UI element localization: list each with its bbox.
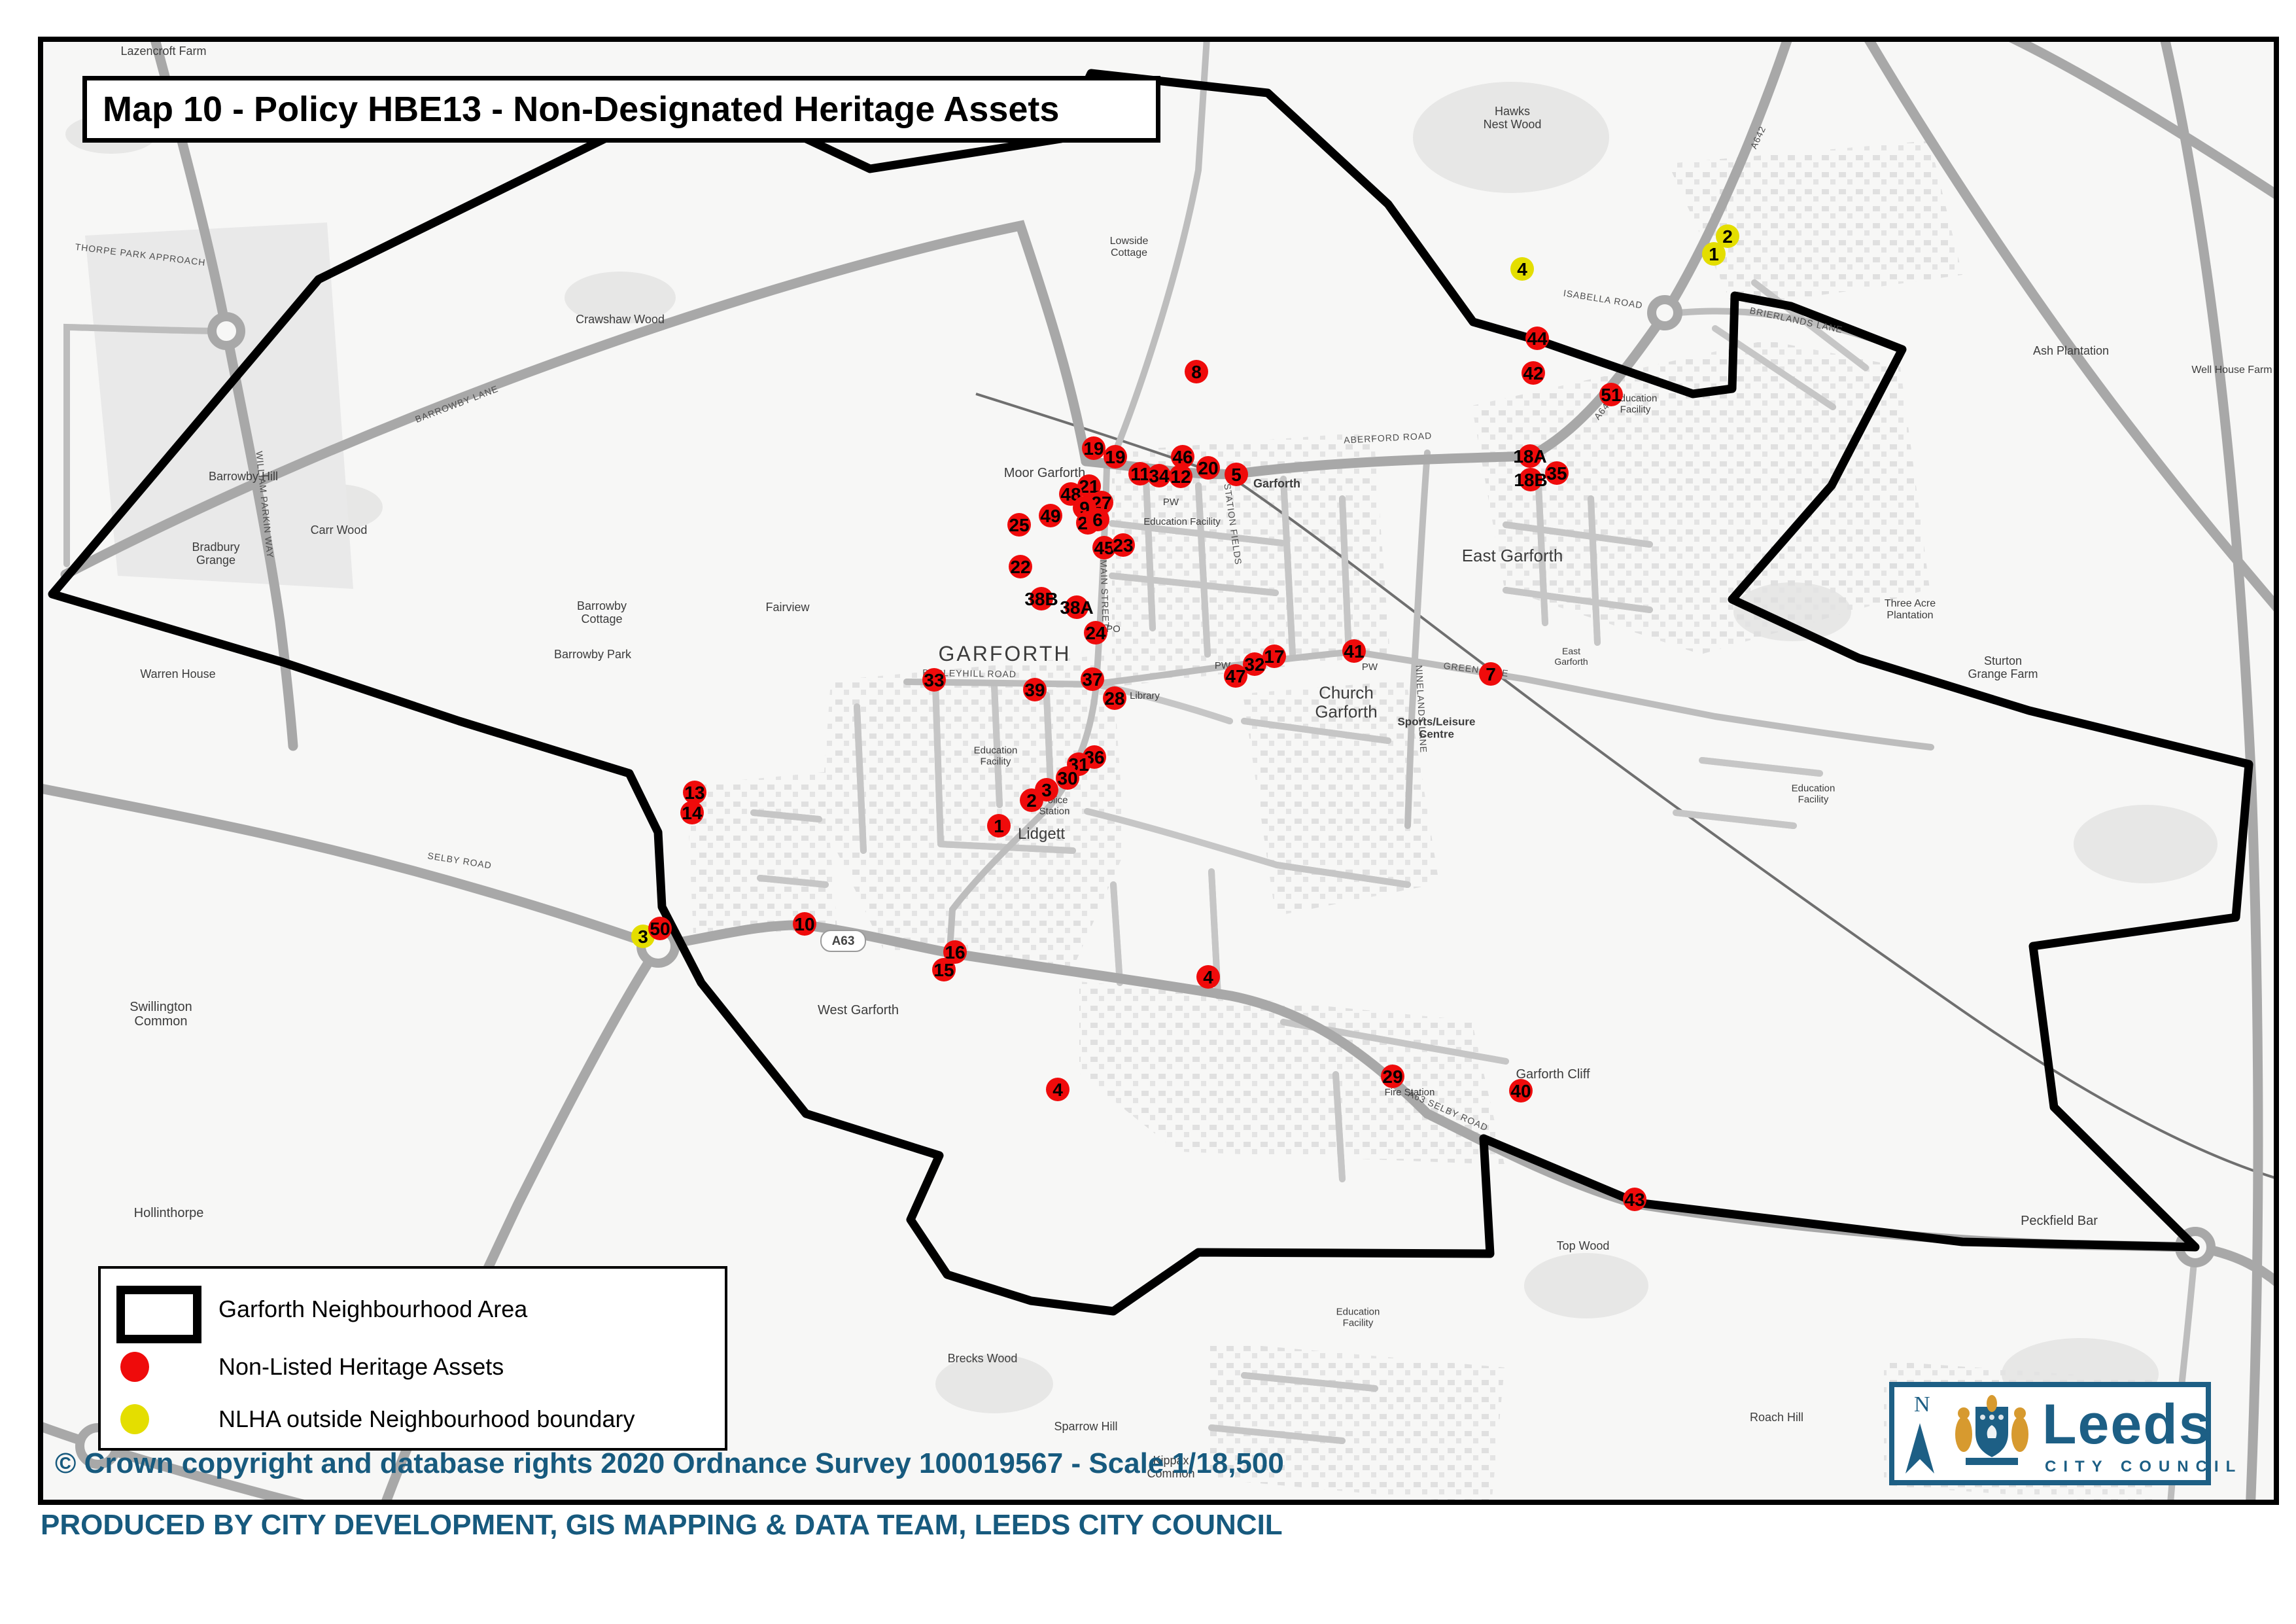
place-label-three-acre-plantation: Three AcrePlantation [1885,598,1936,621]
nlha-outside-marker-label-3: 3 [638,927,648,947]
produced-by-text: PRODUCED BY CITY DEVELOPMENT, GIS MAPPIN… [41,1509,1283,1542]
nlha-marker-label-42: 42 [1523,363,1543,383]
place-label-library: Library [1130,690,1160,701]
nlha-marker-label-39: 39 [1024,680,1045,700]
nlha-marker-label-28: 28 [1104,688,1124,709]
nlha-outside-marker-label-1: 1 [1709,244,1719,264]
nlha-marker-label-34: 34 [1149,466,1170,486]
nlha-marker-label-14: 14 [682,803,703,823]
place-label-fire-station: Fire Station [1385,1087,1435,1098]
copyright-text: © Crown copyright and database rights 20… [55,1447,1284,1480]
nlha-marker-label-24: 24 [1085,623,1106,643]
nlha-marker-label-47: 47 [1225,666,1245,686]
nlha-marker-label-8: 8 [1191,362,1202,382]
red-dot-swatch [120,1352,149,1382]
nlha-marker-label-4: 4 [1203,967,1213,987]
map-page: THORPE PARK APPROACHWILLIAM PARKIN WAYBA… [0,0,2296,1624]
place-label-lowside-cottage: LowsideCottage [1110,236,1149,258]
place-label-west-garforth: West Garforth [818,1003,899,1017]
place-label-peckfield-bar: Peckfield Bar [2021,1214,2098,1228]
nlha-marker-label-49: 49 [1040,506,1060,526]
nlha-outside-marker-label-4: 4 [1517,259,1527,279]
place-label-well-house-farm: Well House Farm [2191,364,2272,376]
legend-label-yellow: NLHA outside Neighbourhood boundary [218,1405,635,1433]
nlha-marker-label-32: 32 [1244,654,1264,675]
place-label-garforth-cliff: Garforth Cliff [1516,1067,1590,1082]
place-label-lazencroft-farm: Lazencroft Farm [120,44,206,58]
nlha-marker-label-51: 51 [1601,385,1621,405]
nlha-marker-label-37: 37 [1082,669,1102,690]
nlha-marker-label-19: 19 [1105,447,1125,467]
yellow-dot-swatch [120,1404,149,1434]
place-label-barrowby-park: Barrowby Park [554,648,632,661]
nlha-marker-label-7: 7 [1486,664,1496,684]
place-label-moor-garforth: Moor Garforth [1004,466,1085,480]
place-label-hollinthorpe: Hollinthorpe [134,1206,204,1220]
nlha-outside-marker-label-2: 2 [1722,226,1733,247]
map-title-box: Map 10 - Policy HBE13 - Non-Designated H… [82,76,1160,143]
nlha-marker-label-50: 50 [650,919,670,939]
nlha-marker-label-46: 46 [1172,447,1192,467]
road-badges-layer: A63 [821,930,865,951]
place-label-education-facility: Education Facility [1143,516,1221,527]
legend-label-boundary: Garforth Neighbourhood Area [218,1296,527,1323]
nlha-marker-label-33: 33 [924,670,944,690]
place-label-barrowby-hill: Barrowby Hill [209,470,278,483]
place-label-pw: PW [1163,497,1179,508]
nlha-marker-label-6: 6 [1092,510,1103,530]
place-label-bradbury-grange: BradburyGrange [192,540,239,567]
place-label-church-garforth: ChurchGarforth [1315,682,1377,721]
nlha-marker-label-38A: 38A [1060,597,1093,618]
nlha-marker-label-18A: 18A [1513,446,1546,467]
place-label-east-garforth: East Garforth [1462,546,1563,565]
place-label-barnbow-common: BarnbowCommon [680,9,727,35]
nlha-marker-label-44: 44 [1527,328,1548,349]
nlha-marker-label-43: 43 [1624,1190,1644,1210]
nlha-marker-label-25: 25 [1009,515,1029,535]
nlha-marker-label-35: 35 [1546,463,1567,484]
nlha-marker-label-3: 3 [1041,780,1052,800]
nlha-marker-label-38B: 38B [1024,589,1058,609]
nlha-marker-label-15: 15 [933,960,954,980]
nlha-marker-label-41: 41 [1344,641,1364,662]
place-label-lidgett: Lidgett [1018,825,1065,843]
nlha-marker-label-5: 5 [1231,465,1242,485]
nlha-marker-label-4: 4 [1052,1080,1063,1100]
place-label-barrowby-cottage: BarrowbyCottage [577,599,627,626]
nlha-marker-label-45: 45 [1094,538,1114,558]
logo-sub-name: CITY COUNCIL [2045,1458,2242,1476]
legend-row-yellow: NLHA outside Neighbourhood boundary [101,1393,725,1445]
nlha-marker-label-2: 2 [1026,790,1037,811]
nlha-marker-label-1: 1 [994,816,1004,836]
logo-org-name: Leeds [2042,1392,2212,1457]
place-label-crawshaw-wood: Crawshaw Wood [576,313,665,326]
nlha-marker-label-11: 11 [1130,464,1150,484]
coat-of-arms-icon [1955,1395,2028,1465]
place-label-top-wood: Top Wood [1557,1239,1610,1252]
place-label-brecks-wood: Brecks Wood [948,1352,1018,1365]
place-label-warren-house: Warren House [140,667,215,680]
nlha-marker-label-20: 20 [1198,458,1218,478]
north-arrow-icon [1905,1423,1934,1474]
nlha-marker-label-40: 40 [1510,1081,1531,1101]
place-label-carr-wood: Carr Wood [311,523,368,537]
nlha-marker-label-22: 22 [1010,557,1030,577]
nlha-marker-label-17: 17 [1264,646,1284,667]
nlha-marker-label-29: 29 [1382,1067,1402,1087]
nlha-marker-label-19: 19 [1083,438,1104,459]
road-badge-a63: A63 [832,934,855,948]
place-label-garforth: GARFORTH [939,642,1071,665]
legend-row-boundary: Garforth Neighbourhood Area [101,1283,725,1335]
nlha-marker-label-10: 10 [794,914,814,934]
place-label-ash-plantation: Ash Plantation [2033,344,2109,357]
place-label-sparrow-hill: Sparrow Hill [1054,1420,1117,1433]
nlha-marker-label-12: 12 [1170,467,1191,487]
nlha-marker-label-23: 23 [1113,535,1133,556]
place-label-garforth: Garforth [1253,477,1300,490]
nlha-marker-label-13: 13 [684,783,704,803]
map-title: Map 10 - Policy HBE13 - Non-Designated H… [103,90,1059,129]
boundary-swatch [116,1286,201,1343]
place-label-swillington-common: SwillingtonCommon [130,1000,192,1029]
nlha-marker-label-18B: 18B [1514,470,1547,490]
legend-label-red: Non-Listed Heritage Assets [218,1353,504,1381]
place-label-pw: PW [1362,662,1378,673]
place-label-roach-hill: Roach Hill [1750,1411,1803,1424]
legend: Garforth Neighbourhood Area Non-Listed H… [98,1266,727,1451]
leeds-city-council-logo: N Leeds CITY COUNCIL [1889,1382,2211,1485]
place-label-fairview: Fairview [765,601,810,614]
nlha-marker-label-30: 30 [1057,768,1077,788]
legend-row-red: Non-Listed Heritage Assets [101,1341,725,1393]
place-label-po: PO [1106,624,1121,635]
